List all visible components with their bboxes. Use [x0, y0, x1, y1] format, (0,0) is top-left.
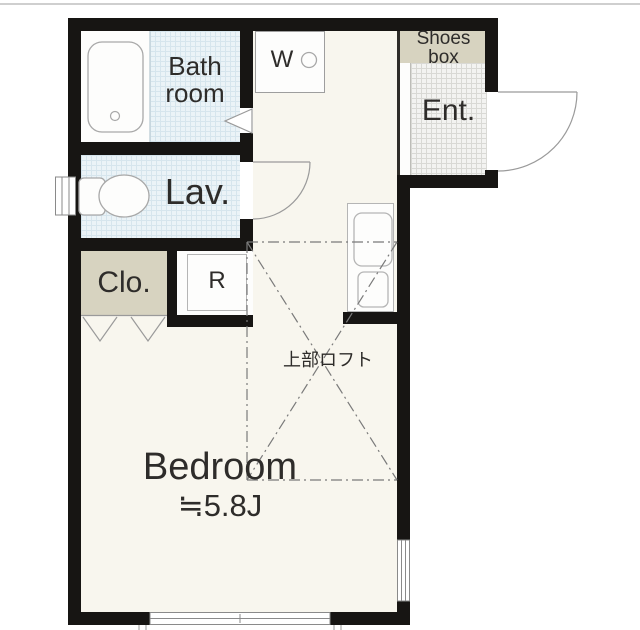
shoes-box-label: Shoes box — [400, 29, 487, 67]
wall-kitchen-stub — [343, 312, 410, 324]
loft-label: 上部ロフト — [258, 351, 398, 369]
wall-bath-hall-a — [240, 31, 253, 108]
photo-edge-line — [0, 3, 640, 5]
wall-bottom — [68, 612, 410, 625]
refrigerator-label: R — [187, 269, 247, 293]
bathroom-label-line2: room — [150, 80, 240, 107]
entrance-step — [400, 63, 410, 175]
bedroom-size: ≒5.8J — [95, 490, 345, 522]
shoes-box-label-line2: box — [400, 48, 487, 67]
closet-label: Clo. — [81, 268, 167, 299]
window-right — [398, 540, 410, 601]
bathroom-tub-area — [81, 31, 150, 142]
wall-entrance-bottom — [397, 175, 498, 188]
wall-below-refrigerator — [167, 315, 253, 327]
lavatory-label: Lav. — [150, 174, 245, 211]
wall-bath-lav-divider — [68, 142, 253, 155]
wall-bedroom-right-lower — [397, 601, 410, 612]
entrance-label: Ent. — [410, 96, 487, 127]
wall-closet-right — [167, 251, 177, 315]
washer-label: W — [268, 48, 296, 72]
wall-left — [68, 18, 81, 625]
bedroom-name: Bedroom — [95, 448, 345, 487]
shoes-box-label-line1: Shoes — [400, 29, 487, 48]
wall-bedroom-right — [397, 188, 410, 540]
entrance-door-swing — [498, 92, 577, 171]
wall-lav-clo-divider — [68, 238, 253, 251]
bathroom-label: Bath room — [150, 53, 240, 106]
bedroom-label: Bedroom ≒5.8J — [95, 448, 345, 521]
floorplan-canvas: Bath room Lav. Clo. R W Shoes box Ent. 上… — [0, 0, 640, 630]
kitchen-counter — [347, 203, 394, 312]
bathroom-label-line1: Bath — [150, 53, 240, 80]
